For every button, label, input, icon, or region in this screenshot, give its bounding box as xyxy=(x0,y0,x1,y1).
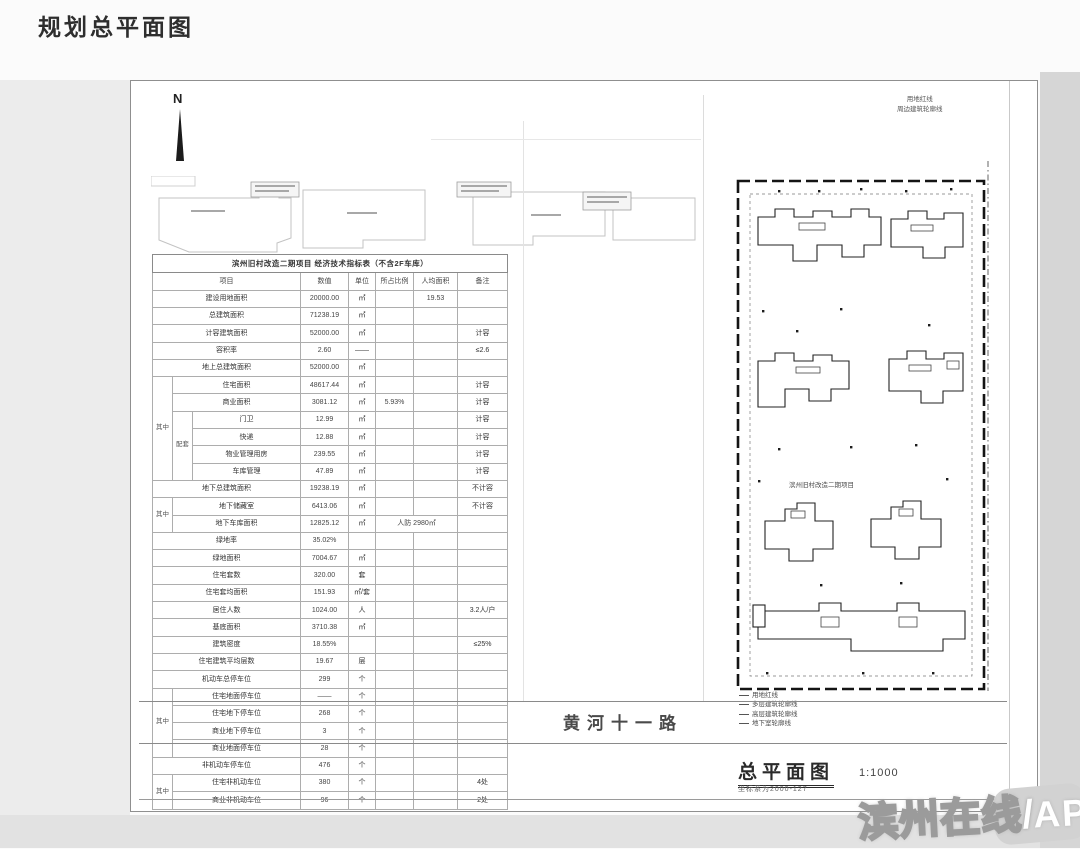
table-cell xyxy=(458,671,508,688)
building-footprints xyxy=(753,209,965,651)
table-cell: 商业地下停车位 xyxy=(173,723,301,740)
table-row: 其中住宅地面停车位——个 xyxy=(153,688,508,705)
table-row: 地下总建筑面积19238.19㎡不计容 xyxy=(153,480,508,497)
table-cell: 52000.00 xyxy=(301,325,349,342)
table-cell: 12825.12 xyxy=(301,515,349,532)
table-cell: 96 xyxy=(301,792,349,810)
context-buildings xyxy=(151,176,711,262)
table-cell xyxy=(376,653,414,670)
table-cell: 12.99 xyxy=(301,411,349,428)
table-cell xyxy=(458,515,508,532)
table-cell: 19238.19 xyxy=(301,480,349,497)
table-cell: 容积率 xyxy=(153,342,301,359)
table-cell: 住宅地面停车位 xyxy=(173,688,301,705)
table-cell: 地下储藏室 xyxy=(173,498,301,515)
table-cell xyxy=(376,584,414,601)
table-cell xyxy=(414,602,458,619)
table-cell xyxy=(458,550,508,567)
table-cell xyxy=(414,757,458,774)
site-marks xyxy=(758,188,952,674)
context-line xyxy=(431,139,701,140)
table-row: 其中住宅面积48617.44㎡计容 xyxy=(153,377,508,394)
table-cell: 其中 xyxy=(153,775,173,810)
table-cell xyxy=(376,342,414,359)
table-cell: 268 xyxy=(301,705,349,722)
table-cell: 商业非机动车位 xyxy=(173,792,301,810)
table-cell xyxy=(458,705,508,722)
table-cell: 20000.00 xyxy=(301,290,349,307)
table-cell xyxy=(458,619,508,636)
table-cell xyxy=(414,688,458,705)
table-cell: ㎡ xyxy=(349,308,376,325)
table-cell: ㎡ xyxy=(349,359,376,376)
table-cell xyxy=(414,671,458,688)
table-cell: 3.2人/户 xyxy=(458,602,508,619)
table-cell xyxy=(376,602,414,619)
table-cell: 不计容 xyxy=(458,480,508,497)
table-cell: ㎡ xyxy=(349,290,376,307)
table-cell: 所占比例 xyxy=(376,273,414,290)
table-cell: ≤2.6 xyxy=(458,342,508,359)
table-cell xyxy=(376,377,414,394)
table-cell: 绿地面积 xyxy=(153,550,301,567)
table-cell xyxy=(376,480,414,497)
context-line xyxy=(523,121,524,701)
road-edge-line xyxy=(139,743,1007,744)
table-cell xyxy=(414,342,458,359)
table-cell: 1024.00 xyxy=(301,602,349,619)
underground-outline xyxy=(750,194,972,676)
table-cell: 18.55% xyxy=(301,636,349,653)
table-cell xyxy=(376,671,414,688)
table-cell xyxy=(458,308,508,325)
table-cell: 320.00 xyxy=(301,567,349,584)
table-cell xyxy=(376,636,414,653)
table-cell: 48617.44 xyxy=(301,377,349,394)
table-row: 配套门卫12.99㎡计容 xyxy=(153,411,508,428)
table-row: 地上总建筑面积52000.00㎡ xyxy=(153,359,508,376)
table-cell xyxy=(414,619,458,636)
table-cell xyxy=(458,723,508,740)
table-row: 基底面积3710.38㎡ xyxy=(153,619,508,636)
table-cell: ㎡ xyxy=(349,515,376,532)
table-cell xyxy=(414,411,458,428)
legend-item: 周边建筑轮廓线 xyxy=(897,105,943,115)
table-title-row: 滨州旧村改造二期项目 经济技术指标表（不含2F车库） xyxy=(153,255,508,273)
table-cell: 7004.67 xyxy=(301,550,349,567)
photo-margin-left xyxy=(0,80,130,815)
table-cell: 个 xyxy=(349,705,376,722)
table-cell xyxy=(414,705,458,722)
table-cell: 个 xyxy=(349,775,376,792)
table-row: 总建筑面积71238.19㎡ xyxy=(153,308,508,325)
table-cell: 住宅面积 xyxy=(173,377,301,394)
site-plan: 滨州旧村改造二期项目 xyxy=(701,161,1021,761)
table-row: 地下车库面积12825.12㎡人防 2980㎡ xyxy=(153,515,508,532)
drawing-sheet: N 滨 xyxy=(130,80,1038,812)
table-cell xyxy=(376,723,414,740)
table-cell xyxy=(376,550,414,567)
table-row: 商业非机动车位96个2处 xyxy=(153,792,508,810)
table-cell xyxy=(414,567,458,584)
table-cell: ㎡ xyxy=(349,550,376,567)
table-cell xyxy=(376,308,414,325)
table-cell xyxy=(376,775,414,792)
table-cell xyxy=(376,705,414,722)
table-cell: 数值 xyxy=(301,273,349,290)
table-header-row: 项目数值单位所占比例人均面积备注 xyxy=(153,273,508,290)
table-cell: 47.89 xyxy=(301,463,349,480)
table-row: 非机动车停车位476个 xyxy=(153,757,508,774)
table-cell: 12.88 xyxy=(301,429,349,446)
legend-bottom: 用地红线多层建筑轮廓线高层建筑轮廓线地下室轮廓线 xyxy=(739,691,798,729)
table-cell: 项目 xyxy=(153,273,301,290)
table-cell: 个 xyxy=(349,671,376,688)
table-cell xyxy=(376,463,414,480)
table-cell xyxy=(349,636,376,653)
table-cell: 151.93 xyxy=(301,584,349,601)
north-arrow: N xyxy=(165,91,195,171)
table-cell: 个 xyxy=(349,723,376,740)
table-cell xyxy=(414,792,458,810)
table-cell xyxy=(376,411,414,428)
table-cell xyxy=(376,567,414,584)
table-cell xyxy=(349,532,376,549)
table-cell: 机动车总停车位 xyxy=(153,671,301,688)
watermark-app: APP xyxy=(1032,790,1080,835)
table-row: 绿地率35.02% xyxy=(153,532,508,549)
table-cell: 个 xyxy=(349,757,376,774)
table-cell xyxy=(376,498,414,515)
table-cell xyxy=(414,359,458,376)
table-cell: 380 xyxy=(301,775,349,792)
table-cell: ㎡ xyxy=(349,377,376,394)
plan-scale: 1:1000 xyxy=(859,767,899,779)
table-row: 商业面积3081.12㎡5.93%计容 xyxy=(153,394,508,411)
table-cell: 地下总建筑面积 xyxy=(153,480,301,497)
table-cell: 配套 xyxy=(173,411,193,480)
table-cell: 备注 xyxy=(458,273,508,290)
indicator-table: 滨州旧村改造二期项目 经济技术指标表（不含2F车库）项目数值单位所占比例人均面积… xyxy=(152,254,493,810)
table-row: 住宅套均面积151.93㎡/套 xyxy=(153,584,508,601)
table-cell: ㎡/套 xyxy=(349,584,376,601)
photo-margin-right xyxy=(1040,72,1080,848)
legend-top-right: 用地红线周边建筑轮廓线 xyxy=(897,95,943,116)
table-cell: 住宅套均面积 xyxy=(153,584,301,601)
table-cell xyxy=(414,377,458,394)
table-cell: 门卫 xyxy=(193,411,301,428)
table-cell: 6413.06 xyxy=(301,498,349,515)
table-cell: 计容 xyxy=(458,325,508,342)
table-cell xyxy=(376,532,414,549)
table-cell xyxy=(376,688,414,705)
table-cell: 车库管理 xyxy=(193,463,301,480)
table-cell: 计容 xyxy=(458,411,508,428)
table-cell: 人防 2980㎡ xyxy=(376,515,458,532)
table-cell xyxy=(414,463,458,480)
table-title: 滨州旧村改造二期项目 经济技术指标表（不含2F车库） xyxy=(153,255,508,273)
north-label: N xyxy=(173,91,182,106)
table-cell: 绿地率 xyxy=(153,532,301,549)
table-row: 容积率2.60——≤2.6 xyxy=(153,342,508,359)
table-cell xyxy=(414,636,458,653)
table-cell xyxy=(414,394,458,411)
table-cell xyxy=(458,584,508,601)
table-cell: 计容 xyxy=(458,429,508,446)
table-row: 机动车总停车位299个 xyxy=(153,671,508,688)
table-cell: ㎡ xyxy=(349,619,376,636)
table-cell: 其中 xyxy=(153,498,173,533)
table-cell: 住宅地下停车位 xyxy=(173,705,301,722)
table-cell: 19.67 xyxy=(301,653,349,670)
street-label: 黄河十一路 xyxy=(563,709,683,734)
table-cell xyxy=(414,446,458,463)
table-cell: 套 xyxy=(349,567,376,584)
table-cell: 2.60 xyxy=(301,342,349,359)
table-cell xyxy=(414,480,458,497)
table-row: 建筑密度18.55%≤25% xyxy=(153,636,508,653)
table-cell: ㎡ xyxy=(349,480,376,497)
table-cell xyxy=(458,290,508,307)
site-center-label: 滨州旧村改造二期项目 xyxy=(789,480,854,489)
table-cell xyxy=(458,688,508,705)
legend-item: 用地红线 xyxy=(897,95,943,105)
table-cell: 476 xyxy=(301,757,349,774)
table-cell xyxy=(458,567,508,584)
table-cell: 3081.12 xyxy=(301,394,349,411)
table-cell: 计容 xyxy=(458,463,508,480)
table-cell: 5.93% xyxy=(376,394,414,411)
table-cell xyxy=(414,532,458,549)
table-cell: ㎡ xyxy=(349,394,376,411)
table-cell: 物业管理用房 xyxy=(193,446,301,463)
table-cell: 19.53 xyxy=(414,290,458,307)
table-cell xyxy=(458,532,508,549)
table-row: 建设用地面积20000.00㎡19.53 xyxy=(153,290,508,307)
table-cell: 人均面积 xyxy=(414,273,458,290)
table-cell: ㎡ xyxy=(349,498,376,515)
table-cell xyxy=(414,653,458,670)
table-cell xyxy=(376,792,414,810)
table-cell xyxy=(376,290,414,307)
building-cores xyxy=(791,223,959,627)
legend-item: 地下室轮廓线 xyxy=(739,719,798,728)
table-cell: 地下车库面积 xyxy=(173,515,301,532)
table-cell: 个 xyxy=(349,792,376,810)
table-cell xyxy=(414,498,458,515)
table-row: 商业地下停车位3个 xyxy=(153,723,508,740)
table-cell: 计容建筑面积 xyxy=(153,325,301,342)
table-cell xyxy=(458,653,508,670)
table-cell: ≤25% xyxy=(458,636,508,653)
table-cell: 52000.00 xyxy=(301,359,349,376)
table-cell xyxy=(414,429,458,446)
table-cell: 计容 xyxy=(458,446,508,463)
table-row: 车库管理47.89㎡计容 xyxy=(153,463,508,480)
table-cell: 其中 xyxy=(153,377,173,481)
table-cell: ㎡ xyxy=(349,411,376,428)
table-row: 居住人数1024.00人3.2人/户 xyxy=(153,602,508,619)
table-cell xyxy=(376,359,414,376)
table-cell: 建筑密度 xyxy=(153,636,301,653)
table-cell: 建设用地面积 xyxy=(153,290,301,307)
table-cell: 计容 xyxy=(458,394,508,411)
table-row: 快递12.88㎡计容 xyxy=(153,429,508,446)
table-cell: ㎡ xyxy=(349,446,376,463)
table-cell xyxy=(414,308,458,325)
table-cell: 计容 xyxy=(458,377,508,394)
table-cell xyxy=(376,757,414,774)
table-cell: 人 xyxy=(349,602,376,619)
table-cell: 71238.19 xyxy=(301,308,349,325)
table-cell: 快递 xyxy=(193,429,301,446)
table-cell: —— xyxy=(349,342,376,359)
table-cell: 住宅非机动车位 xyxy=(173,775,301,792)
table-cell: 35.02% xyxy=(301,532,349,549)
table-cell xyxy=(458,359,508,376)
table-cell: ㎡ xyxy=(349,325,376,342)
table-cell: 单位 xyxy=(349,273,376,290)
table-cell xyxy=(376,325,414,342)
table-row: 物业管理用房239.55㎡计容 xyxy=(153,446,508,463)
table-cell: 其中 xyxy=(153,688,173,757)
table-cell xyxy=(414,723,458,740)
table-cell: 非机动车停车位 xyxy=(153,757,301,774)
table-cell: 4处 xyxy=(458,775,508,792)
table-cell: 住宅建筑平均层数 xyxy=(153,653,301,670)
table-cell: 不计容 xyxy=(458,498,508,515)
table-cell: 基底面积 xyxy=(153,619,301,636)
plan-subtitle: 坐标系为2000-127 xyxy=(738,784,808,794)
table-cell xyxy=(414,584,458,601)
table-row: 住宅套数320.00套 xyxy=(153,567,508,584)
table-row: 计容建筑面积52000.00㎡计容 xyxy=(153,325,508,342)
table-row: 住宅建筑平均层数19.67层 xyxy=(153,653,508,670)
table-cell xyxy=(414,325,458,342)
legend-item: 用地红线 xyxy=(739,691,798,700)
table-row: 绿地面积7004.67㎡ xyxy=(153,550,508,567)
page-title: 规划总平面图 xyxy=(38,8,194,42)
table-cell: 居住人数 xyxy=(153,602,301,619)
road-edge-line xyxy=(139,701,1007,702)
table-cell xyxy=(458,757,508,774)
table-cell: 3 xyxy=(301,723,349,740)
table-cell xyxy=(414,550,458,567)
watermark-name: 滨州在线 xyxy=(857,793,1023,846)
watermark: 滨州在线/APP xyxy=(857,777,1080,848)
table-cell xyxy=(414,775,458,792)
table-row: 其中住宅非机动车位380个4处 xyxy=(153,775,508,792)
table-cell: 239.55 xyxy=(301,446,349,463)
table-cell: 总建筑面积 xyxy=(153,308,301,325)
table-cell xyxy=(376,619,414,636)
table-cell: 个 xyxy=(349,688,376,705)
table-cell: 地上总建筑面积 xyxy=(153,359,301,376)
table-cell: ㎡ xyxy=(349,429,376,446)
table-cell: 商业面积 xyxy=(173,394,301,411)
table-cell: ㎡ xyxy=(349,463,376,480)
table-cell: 层 xyxy=(349,653,376,670)
table-row: 住宅地下停车位268个 xyxy=(153,705,508,722)
table-cell xyxy=(376,429,414,446)
table-cell: 2处 xyxy=(458,792,508,810)
table-cell: 3710.38 xyxy=(301,619,349,636)
table-row: 其中地下储藏室6413.06㎡不计容 xyxy=(153,498,508,515)
table-cell: 住宅套数 xyxy=(153,567,301,584)
table-cell xyxy=(376,446,414,463)
table-cell: —— xyxy=(301,688,349,705)
table-cell: 299 xyxy=(301,671,349,688)
legend-item: 高层建筑轮廓线 xyxy=(739,710,798,719)
